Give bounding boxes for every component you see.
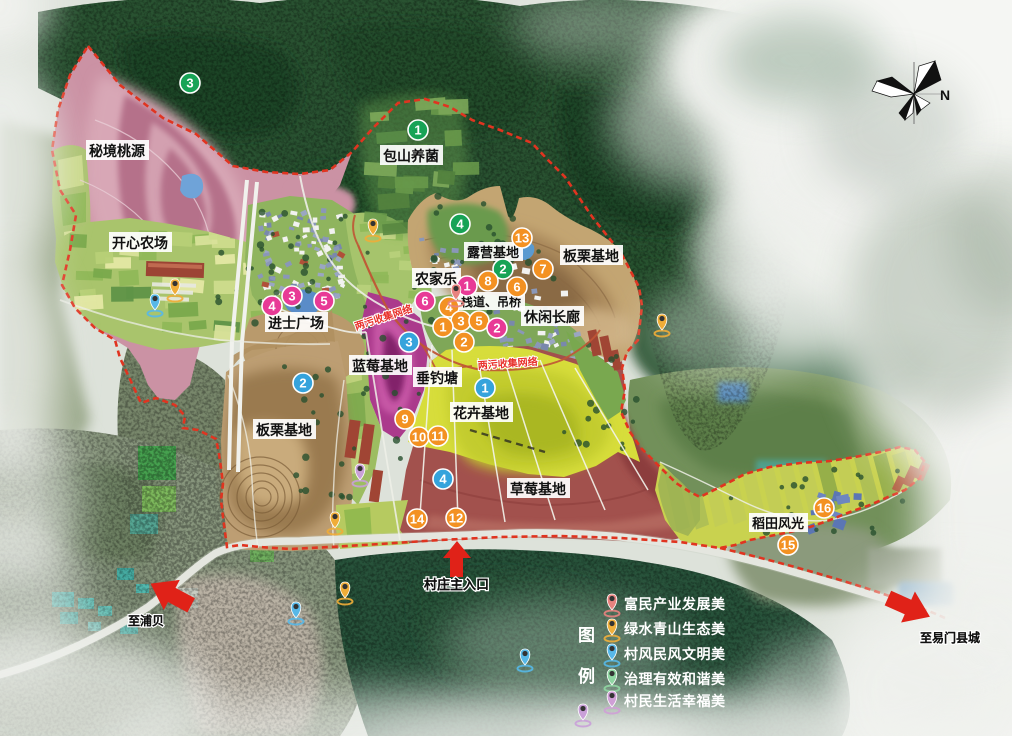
svg-text:1: 1 bbox=[463, 279, 470, 294]
svg-text:绿水青山生态美: 绿水青山生态美 bbox=[624, 621, 726, 637]
svg-text:图: 图 bbox=[578, 626, 595, 645]
svg-text:开心农场: 开心农场 bbox=[112, 235, 168, 251]
svg-text:3: 3 bbox=[457, 314, 464, 329]
svg-text:4: 4 bbox=[456, 217, 464, 232]
svg-text:蓝莓基地: 蓝莓基地 bbox=[352, 358, 408, 374]
svg-text:3: 3 bbox=[186, 76, 193, 91]
svg-text:2: 2 bbox=[460, 335, 467, 350]
svg-text:至浦贝: 至浦贝 bbox=[128, 613, 164, 628]
svg-text:露营基地: 露营基地 bbox=[467, 245, 519, 260]
svg-text:2: 2 bbox=[499, 262, 506, 277]
svg-text:15: 15 bbox=[781, 538, 795, 553]
svg-text:7: 7 bbox=[539, 262, 546, 277]
svg-text:稻田风光: 稻田风光 bbox=[752, 516, 804, 531]
svg-text:农家乐: 农家乐 bbox=[414, 271, 457, 287]
svg-text:2: 2 bbox=[493, 321, 500, 336]
svg-text:14: 14 bbox=[410, 512, 425, 527]
svg-text:村民生活幸福美: 村民生活幸福美 bbox=[624, 693, 726, 709]
svg-text:草莓基地: 草莓基地 bbox=[510, 481, 566, 497]
svg-text:富民产业发展美: 富民产业发展美 bbox=[624, 596, 726, 612]
svg-text:13: 13 bbox=[515, 231, 529, 246]
svg-text:5: 5 bbox=[475, 314, 482, 329]
svg-text:9: 9 bbox=[401, 412, 408, 427]
svg-text:3: 3 bbox=[288, 289, 295, 304]
svg-text:16: 16 bbox=[817, 501, 831, 516]
svg-text:秘境桃源: 秘境桃源 bbox=[89, 143, 145, 159]
svg-text:6: 6 bbox=[513, 280, 520, 295]
svg-text:花卉基地: 花卉基地 bbox=[453, 405, 509, 421]
svg-text:1: 1 bbox=[439, 320, 446, 335]
svg-text:至易门县城: 至易门县城 bbox=[920, 630, 980, 645]
svg-text:6: 6 bbox=[421, 294, 428, 309]
svg-text:治理有效和谐美: 治理有效和谐美 bbox=[624, 671, 726, 687]
svg-text:8: 8 bbox=[484, 274, 491, 289]
svg-text:10: 10 bbox=[412, 430, 426, 445]
svg-text:4: 4 bbox=[439, 472, 447, 487]
svg-text:村风民风文明美: 村风民风文明美 bbox=[624, 646, 726, 662]
svg-text:N: N bbox=[940, 87, 950, 103]
svg-text:5: 5 bbox=[320, 294, 327, 309]
svg-text:板栗基地: 板栗基地 bbox=[563, 248, 619, 264]
svg-text:垂钓塘: 垂钓塘 bbox=[416, 370, 458, 386]
svg-text:村庄主入口: 村庄主入口 bbox=[424, 577, 489, 592]
svg-text:1: 1 bbox=[414, 123, 421, 138]
svg-text:4: 4 bbox=[268, 299, 276, 314]
svg-text:休闲长廊: 休闲长廊 bbox=[523, 309, 580, 325]
svg-text:包山养菌: 包山养菌 bbox=[383, 148, 439, 164]
svg-text:1: 1 bbox=[481, 381, 488, 396]
svg-text:3: 3 bbox=[405, 335, 412, 350]
svg-text:板栗基地: 板栗基地 bbox=[256, 422, 312, 438]
svg-text:进士广场: 进士广场 bbox=[268, 315, 324, 331]
svg-text:11: 11 bbox=[431, 429, 445, 444]
svg-text:2: 2 bbox=[299, 376, 306, 391]
svg-text:12: 12 bbox=[449, 511, 463, 526]
svg-text:例: 例 bbox=[578, 666, 595, 686]
